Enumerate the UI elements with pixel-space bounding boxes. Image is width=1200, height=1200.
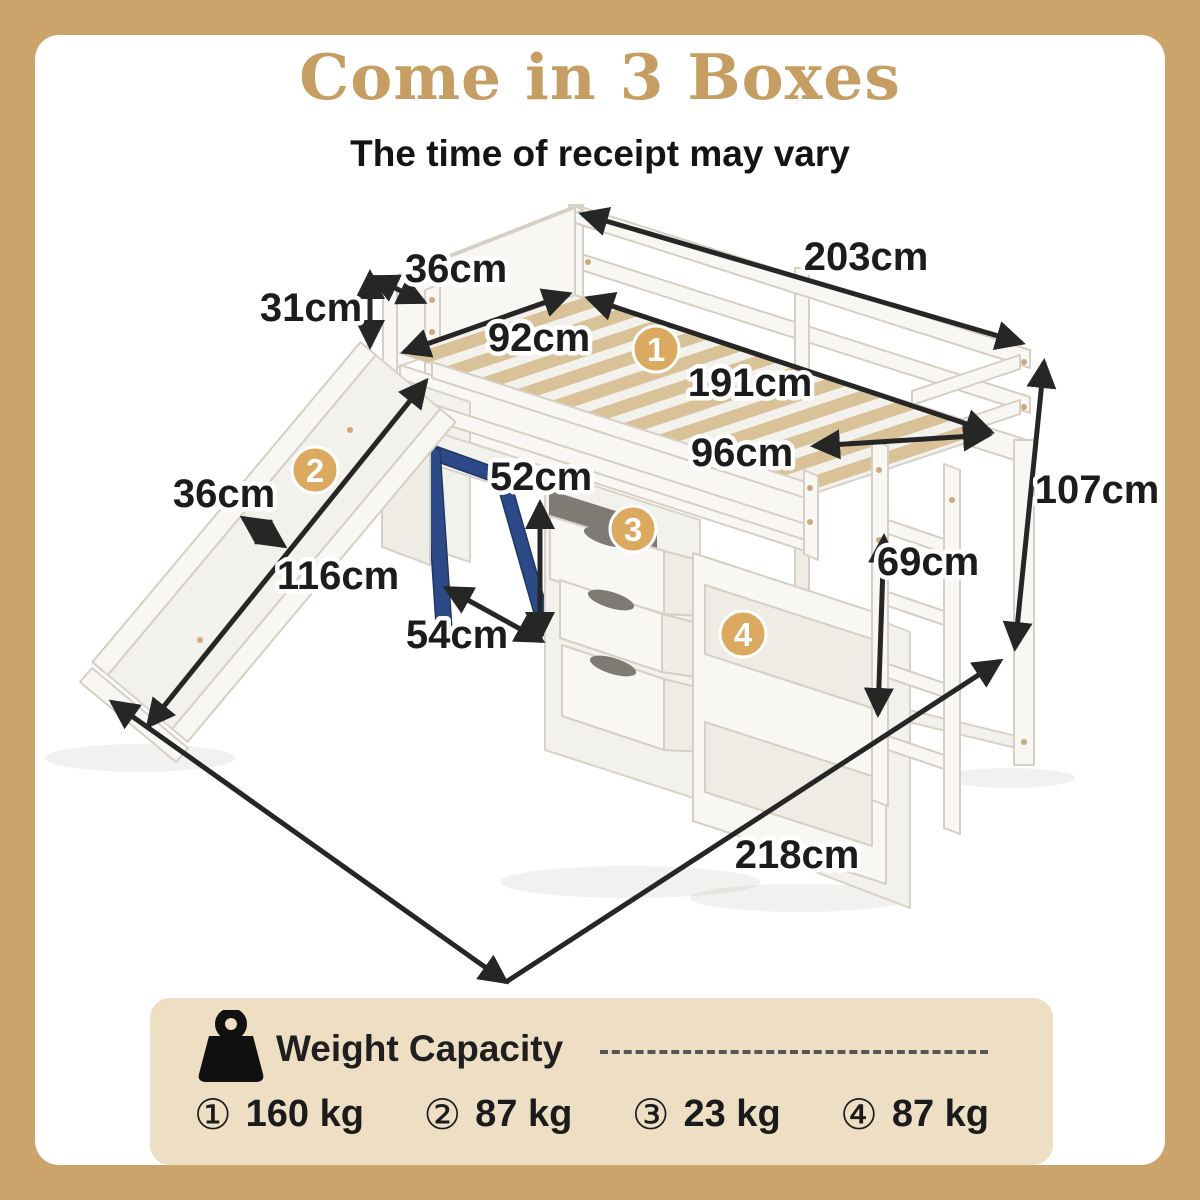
ladder [872, 440, 960, 834]
badge-2: 2 [292, 447, 338, 493]
loft-bed-diagram: 1 2 3 4 36cm 203cm 31cm 92cm 191cm 96cm … [0, 0, 1200, 1200]
floor-shadows [45, 744, 1075, 912]
svg-text:3: 3 [624, 511, 642, 548]
dim-inner-length: 191cm [688, 361, 813, 405]
dim-overall-height: 107cm [1035, 468, 1160, 512]
badge-3: 3 [610, 506, 656, 552]
dim-foot-width: 96cm [691, 431, 793, 475]
dim-slide-length: 116cm [277, 554, 399, 598]
dim-total-length: 218cm [735, 833, 860, 877]
svg-text:1: 1 [647, 331, 665, 368]
dim-clearance-height: 69cm [877, 540, 979, 584]
svg-text:4: 4 [734, 616, 753, 653]
dim-desk-depth: 54cm [406, 613, 508, 657]
badge-1: 1 [633, 326, 679, 372]
dim-inner-width: 92cm [488, 316, 590, 360]
dim-slide-width: 36cm [173, 472, 275, 516]
dim-desk-height: 52cm [490, 455, 592, 499]
dim-headboard-height: 31cm [260, 286, 362, 330]
dim-headboard-width: 36cm [405, 247, 507, 291]
slide [80, 342, 456, 762]
badge-4: 4 [720, 611, 766, 657]
dim-outer-length: 203cm [804, 235, 929, 279]
svg-text:2: 2 [306, 452, 324, 489]
